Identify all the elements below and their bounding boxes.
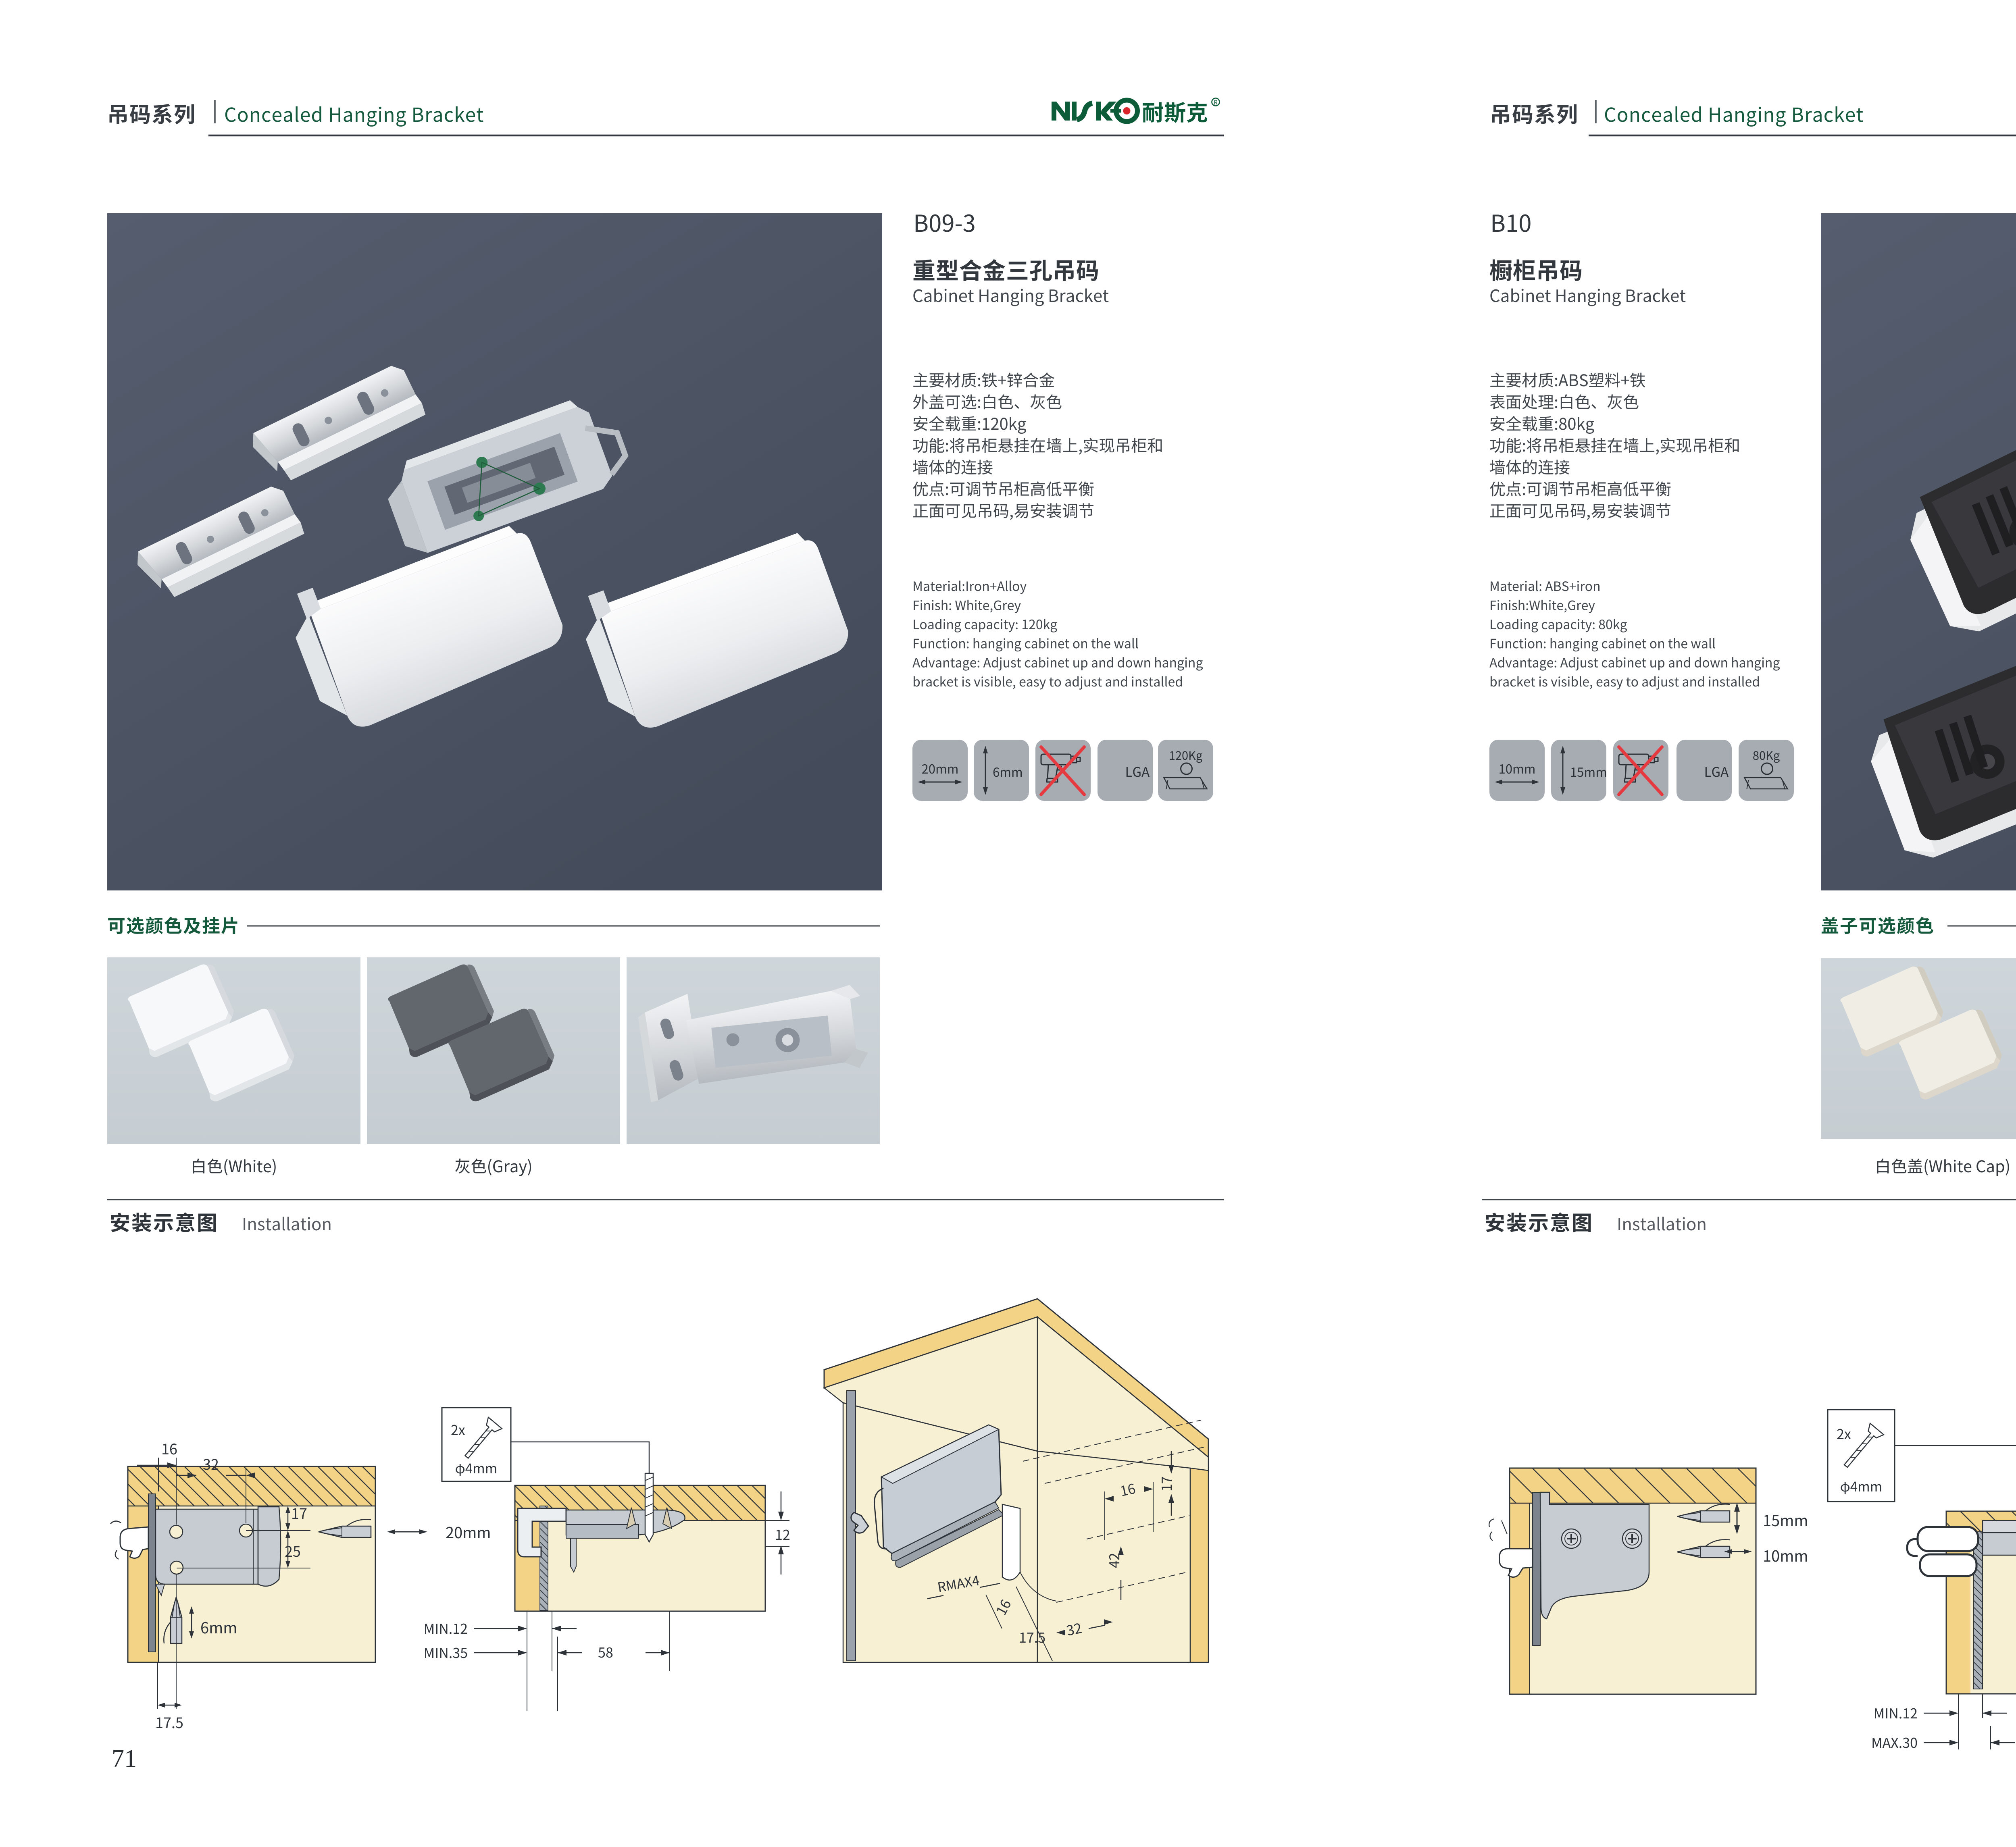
svg-text:71: 71	[112, 1745, 137, 1772]
